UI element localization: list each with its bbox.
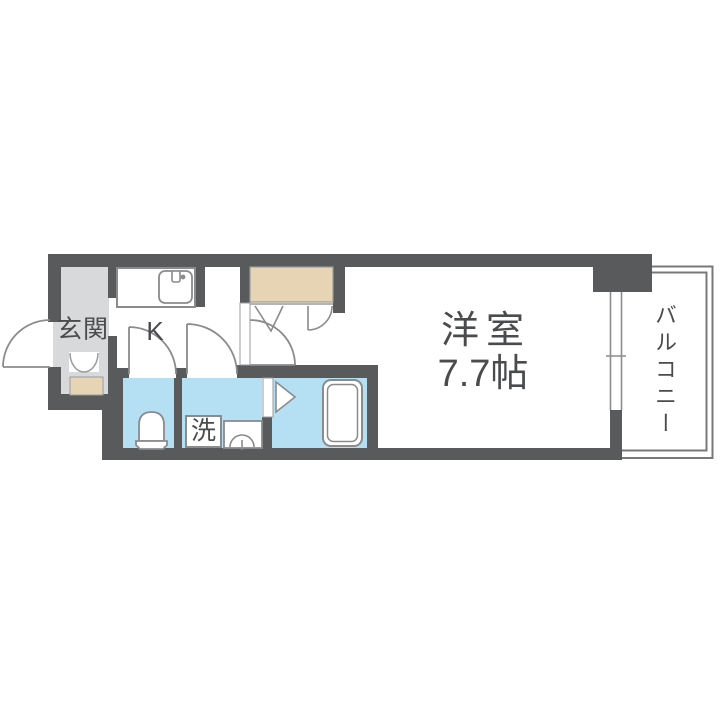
wall-toilet-left	[114, 368, 123, 448]
laundry-machine-box: 洗	[185, 415, 222, 448]
closet-bifold-door	[255, 306, 283, 331]
room-doorway-frame	[240, 303, 250, 365]
entrance-step-mat	[70, 377, 103, 395]
wall-pillar-top-right	[593, 254, 652, 292]
closet-door-arc	[308, 306, 332, 330]
wall-counter-stub	[195, 267, 205, 307]
room-size-label: 7.7帖	[438, 355, 529, 393]
shoe-cabinet-body	[69, 352, 99, 372]
wall-toilet-washroom	[174, 378, 182, 448]
kitchen-counter	[117, 268, 195, 307]
room-name-label: 洋室	[441, 312, 531, 350]
floorplan: 玄関 K 洋室 7.7帖 バルコニー 洗	[0, 0, 720, 720]
floorplan-drawing	[0, 0, 720, 720]
washroom-door-arc	[187, 324, 237, 374]
kitchen-label: K	[146, 318, 163, 344]
wall-right-lower	[610, 410, 622, 460]
washbasin-icon	[224, 421, 262, 450]
toilet-base	[136, 441, 167, 449]
bath-doorway-strip	[263, 378, 273, 417]
wall-washroom-bath	[262, 417, 272, 448]
kitchen-faucet-icon	[172, 271, 180, 282]
wall-bottom	[102, 448, 622, 460]
laundry-label: 洗	[191, 419, 216, 444]
kitchen-faucet-dot	[181, 275, 186, 280]
wall-bath-room	[367, 365, 378, 448]
wall-entrance-right-stub	[108, 267, 117, 298]
wall-kitchen-room-upper	[240, 267, 250, 303]
entrance-door-arc	[3, 320, 50, 367]
toilet-bowl	[139, 412, 164, 441]
wall-hall-bottom-c	[237, 365, 367, 378]
entrance-label: 玄関	[57, 318, 109, 343]
closet-body	[250, 267, 333, 302]
wall-closet-right-stub	[333, 254, 345, 313]
entrance-door	[3, 320, 50, 367]
balcony-label: バルコニー	[653, 304, 675, 439]
wall-top	[48, 254, 593, 267]
wall-hall-bottom-a	[108, 368, 129, 378]
bathtub-inner	[328, 385, 358, 442]
balcony-window	[606, 292, 626, 410]
shoe-cabinet	[69, 352, 99, 372]
wall-left-upper	[48, 254, 61, 322]
wall-hall-bottom-b	[176, 368, 187, 378]
toilet-icon	[136, 412, 167, 449]
